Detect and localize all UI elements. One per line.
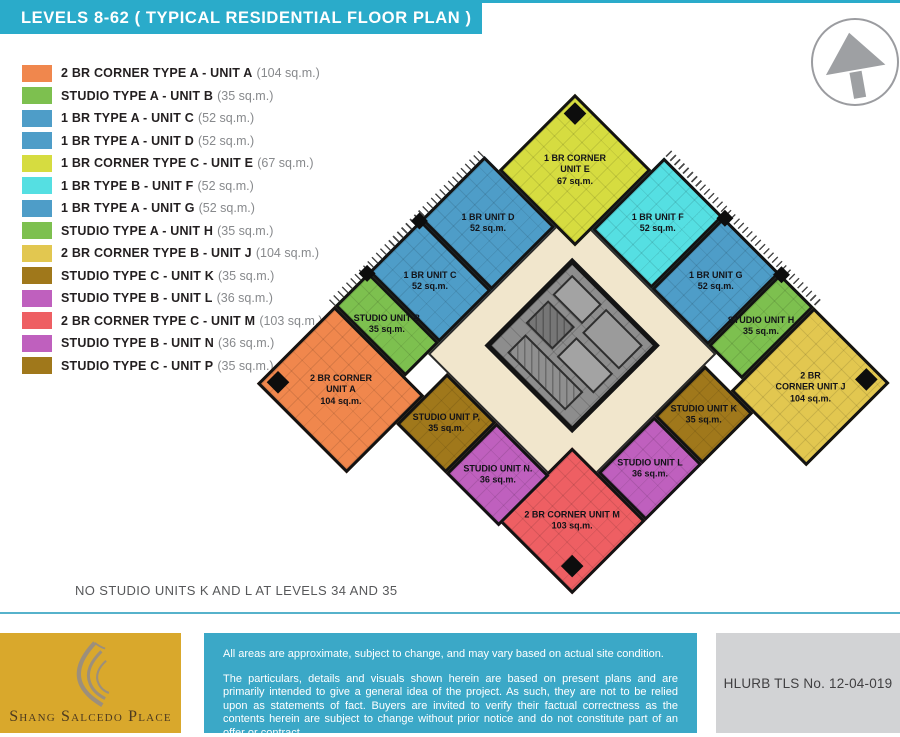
- legend-label: STUDIO TYPE C - UNIT K(35 sq.m.): [61, 269, 274, 283]
- legend-swatch: [22, 312, 52, 329]
- legend-item-10: STUDIO TYPE C - UNIT K(35 sq.m.): [22, 267, 274, 285]
- legend-swatch: [22, 357, 52, 374]
- legend-label: STUDIO TYPE B - UNIT N(36 sq.m.): [61, 336, 274, 350]
- brand-box: Shang Salcedo Place: [0, 633, 181, 733]
- legend-label: 1 BR TYPE B - UNIT F(52 sq.m.): [61, 179, 254, 193]
- legend-label: 2 BR CORNER TYPE A - UNIT A(104 sq.m.): [61, 66, 320, 80]
- legend-item-7: 1 BR TYPE A - UNIT G(52 sq.m.): [22, 199, 255, 217]
- unit-j-label: 2 BRCORNER UNIT J104 sq.m.: [775, 370, 845, 404]
- unit-m-label: 2 BR CORNER UNIT M103 sq.m.: [524, 510, 620, 533]
- unit-d-label: 1 BR UNIT D52 sq.m.: [462, 212, 515, 235]
- legend-swatch: [22, 132, 52, 149]
- legend-swatch: [22, 110, 52, 127]
- legend-swatch: [22, 245, 52, 262]
- unit-l-label: STUDIO UNIT L36 sq.m.: [617, 457, 683, 480]
- legend-item-12: 2 BR CORNER TYPE C - UNIT M(103 sq.m.): [22, 312, 323, 330]
- page-title: LEVELS 8-62 ( TYPICAL RESIDENTIAL FLOOR …: [0, 9, 472, 28]
- plan-note: NO STUDIO UNITS K AND L AT LEVELS 34 AND…: [75, 583, 398, 598]
- legend-label: STUDIO TYPE C - UNIT P(35 sq.m.): [61, 359, 274, 373]
- unit-c-label: 1 BR UNIT C52 sq.m.: [404, 270, 457, 293]
- legend-item-5: 1 BR CORNER TYPE C - UNIT E(67 sq.m.): [22, 154, 314, 172]
- legend-swatch: [22, 335, 52, 352]
- legend-label: 2 BR CORNER TYPE B - UNIT J(104 sq.m.): [61, 246, 319, 260]
- legend-swatch: [22, 290, 52, 307]
- legend-swatch: [22, 87, 52, 104]
- divider-line: [0, 612, 900, 614]
- disclaimer-line-1: All areas are approximate, subject to ch…: [223, 648, 678, 662]
- floor-plan-page: LEVELS 8-62 ( TYPICAL RESIDENTIAL FLOOR …: [0, 0, 900, 737]
- unit-e-label: 1 BR CORNERUNIT E67 sq.m.: [544, 153, 606, 187]
- brand-swirl-icon: [60, 640, 122, 708]
- legend-item-6: 1 BR TYPE B - UNIT F(52 sq.m.): [22, 177, 254, 195]
- legend-label: 1 BR TYPE A - UNIT G(52 sq.m.): [61, 201, 255, 215]
- legend-swatch: [22, 155, 52, 172]
- unit-h-label: STUDIO UNIT H35 sq.m.: [728, 315, 795, 338]
- legend-item-13: STUDIO TYPE B - UNIT N(36 sq.m.): [22, 334, 274, 352]
- legend-item-4: 1 BR TYPE A - UNIT D(52 sq.m.): [22, 132, 254, 150]
- legend-swatch: [22, 222, 52, 239]
- unit-g-label: 1 BR UNIT G52 sq.m.: [689, 270, 743, 293]
- north-arrow-icon: [811, 18, 899, 106]
- unit-p-label: STUDIO UNIT P,35 sq.m.: [413, 412, 480, 435]
- unit-k-label: STUDIO UNIT K35 sq.m.: [670, 404, 737, 427]
- legend-label: STUDIO TYPE B - UNIT L(36 sq.m.): [61, 291, 273, 305]
- unit-a-label: 2 BR CORNERUNIT A104 sq.m.: [310, 373, 372, 407]
- unit-b-label: STUDIO UNIT B35 sq.m.: [354, 313, 421, 336]
- legend-swatch: [22, 177, 52, 194]
- legend-item-3: 1 BR TYPE A - UNIT C(52 sq.m.): [22, 109, 254, 127]
- legend-swatch: [22, 267, 52, 284]
- legend-label: 1 BR TYPE A - UNIT C(52 sq.m.): [61, 111, 254, 125]
- hlurb-number: HLURB TLS No. 12-04-019: [724, 676, 893, 691]
- legend-item-8: STUDIO TYPE A - UNIT H(35 sq.m.): [22, 222, 273, 240]
- legend-item-14: STUDIO TYPE C - UNIT P(35 sq.m.): [22, 357, 274, 375]
- legend-label: STUDIO TYPE A - UNIT H(35 sq.m.): [61, 224, 273, 238]
- unit-n-label: STUDIO UNIT N.36 sq.m.: [463, 463, 532, 485]
- legend-item-9: 2 BR CORNER TYPE B - UNIT J(104 sq.m.): [22, 244, 319, 262]
- floor-plan: 1 BR CORNERUNIT E67 sq.m.1 BR UNIT D52 s…: [292, 54, 858, 620]
- legend-label: 1 BR TYPE A - UNIT D(52 sq.m.): [61, 134, 254, 148]
- title-bar: LEVELS 8-62 ( TYPICAL RESIDENTIAL FLOOR …: [0, 3, 482, 34]
- brand-name: Shang Salcedo Place: [9, 708, 172, 726]
- legend-item-2: STUDIO TYPE A - UNIT B(35 sq.m.): [22, 87, 273, 105]
- legend-item-1: 2 BR CORNER TYPE A - UNIT A(104 sq.m.): [22, 64, 320, 82]
- hlurb-box: HLURB TLS No. 12-04-019: [716, 633, 900, 733]
- legend-item-11: STUDIO TYPE B - UNIT L(36 sq.m.): [22, 289, 273, 307]
- legend-label: 2 BR CORNER TYPE C - UNIT M(103 sq.m.): [61, 314, 323, 328]
- disclaimer-box: All areas are approximate, subject to ch…: [204, 633, 697, 733]
- unit-f-label: 1 BR UNIT F52 sq.m.: [632, 212, 684, 235]
- disclaimer-line-2: The particulars, details and visuals sho…: [223, 673, 678, 737]
- legend-label: 1 BR CORNER TYPE C - UNIT E(67 sq.m.): [61, 156, 314, 170]
- legend-label: STUDIO TYPE A - UNIT B(35 sq.m.): [61, 89, 273, 103]
- legend-swatch: [22, 200, 52, 217]
- legend-swatch: [22, 65, 52, 82]
